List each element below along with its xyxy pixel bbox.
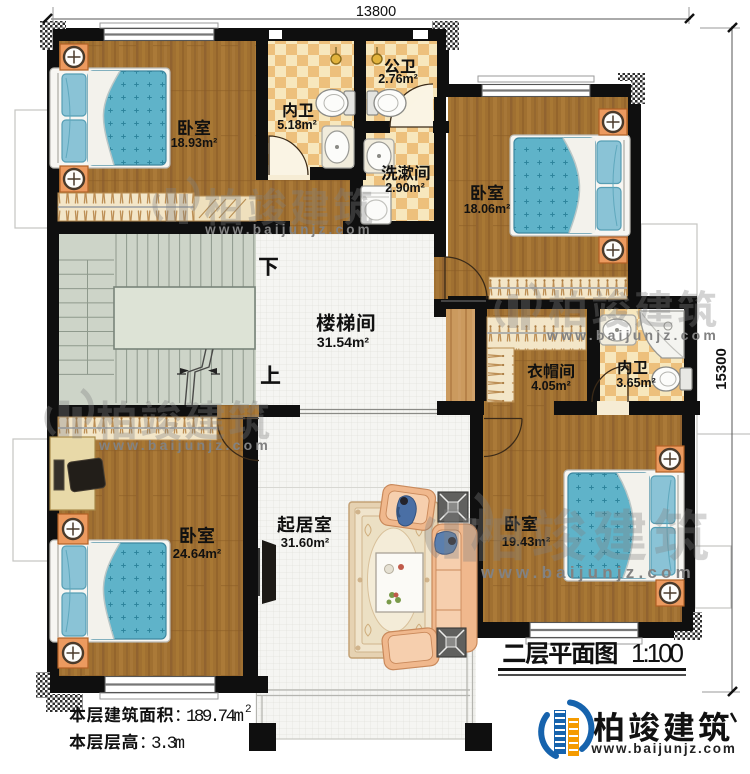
- svg-text:31.54m²: 31.54m²: [317, 334, 369, 350]
- svg-text:189.74m: 189.74m: [186, 707, 244, 727]
- svg-text:18.06m²: 18.06m²: [464, 202, 511, 216]
- svg-text:www.baijunjz.com: www.baijunjz.com: [204, 222, 373, 237]
- svg-text:www.baijunjz.com: www.baijunjz.com: [480, 563, 695, 582]
- svg-text:3.3m: 3.3m: [151, 734, 185, 754]
- svg-text:www.baijunjz.com: www.baijunjz.com: [590, 741, 736, 756]
- svg-text:1:100: 1:100: [631, 638, 684, 668]
- svg-text:2.90m²: 2.90m²: [385, 181, 425, 195]
- svg-text:2: 2: [245, 704, 252, 716]
- svg-text:5.18m²: 5.18m²: [277, 118, 317, 132]
- svg-text:15300: 15300: [713, 348, 730, 390]
- svg-text:13800: 13800: [356, 4, 396, 20]
- svg-text:2.76m²: 2.76m²: [378, 72, 418, 86]
- svg-text:www.baijunjz.com: www.baijunjz.com: [98, 437, 271, 453]
- svg-text:www.baijunjz.com: www.baijunjz.com: [546, 327, 719, 343]
- svg-text:24.64m²: 24.64m²: [173, 546, 222, 561]
- svg-text:18.93m²: 18.93m²: [171, 136, 218, 150]
- svg-text:4.05m²: 4.05m²: [531, 379, 571, 393]
- svg-text:3.65m²: 3.65m²: [616, 376, 656, 390]
- svg-text:31.60m²: 31.60m²: [281, 535, 330, 550]
